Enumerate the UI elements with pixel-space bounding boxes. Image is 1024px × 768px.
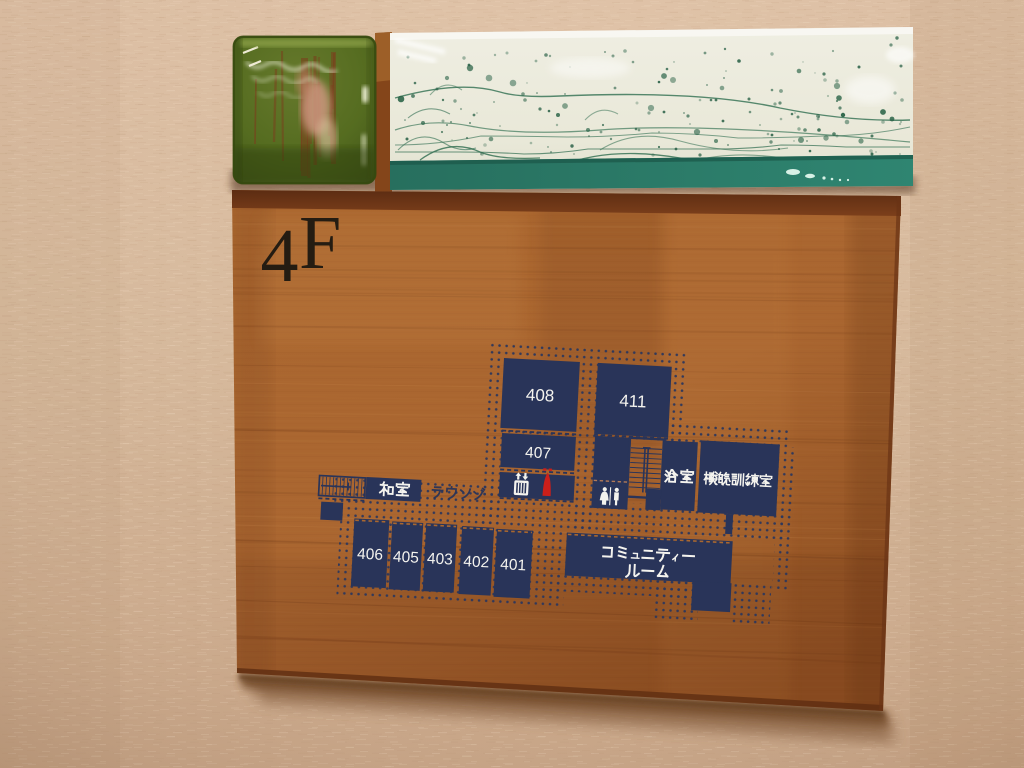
svg-text:408: 408 (525, 385, 554, 405)
svg-text:4: 4 (261, 214, 299, 298)
svg-text:406: 406 (357, 546, 384, 564)
svg-text:407: 407 (525, 444, 552, 462)
svg-text:411: 411 (619, 391, 647, 411)
svg-text:403: 403 (427, 550, 454, 568)
svg-text:401: 401 (500, 556, 527, 574)
svg-text:F: F (299, 201, 341, 285)
svg-text:405: 405 (393, 548, 420, 566)
svg-text:402: 402 (463, 553, 490, 571)
